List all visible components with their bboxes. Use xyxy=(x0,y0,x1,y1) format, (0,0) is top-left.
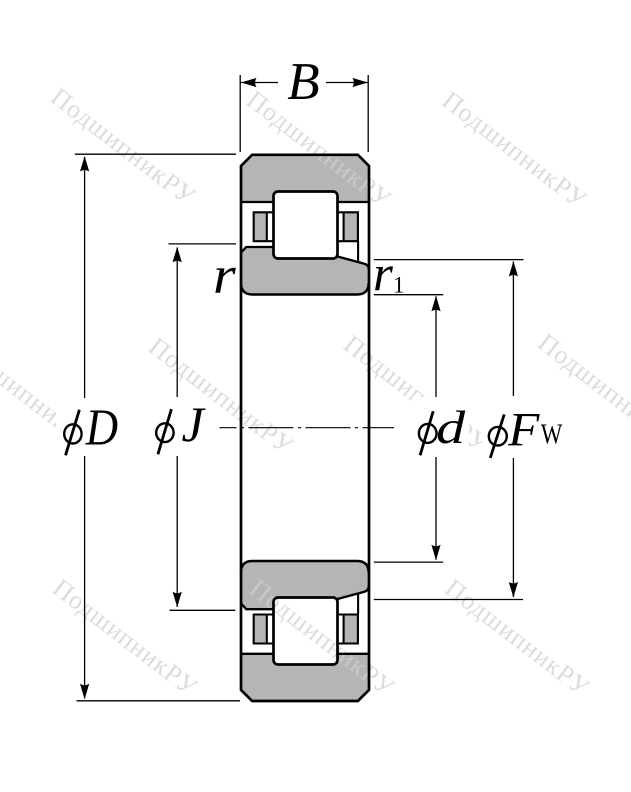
svg-text:r: r xyxy=(373,247,393,303)
svg-text:W: W xyxy=(541,418,563,450)
svg-text:r: r xyxy=(213,246,236,305)
svg-text:d: d xyxy=(436,402,466,453)
svg-text:D: D xyxy=(85,399,118,456)
svg-text:1: 1 xyxy=(393,272,405,297)
svg-text:B: B xyxy=(287,53,319,111)
svg-text:F: F xyxy=(507,403,540,456)
svg-text:J: J xyxy=(182,396,207,452)
